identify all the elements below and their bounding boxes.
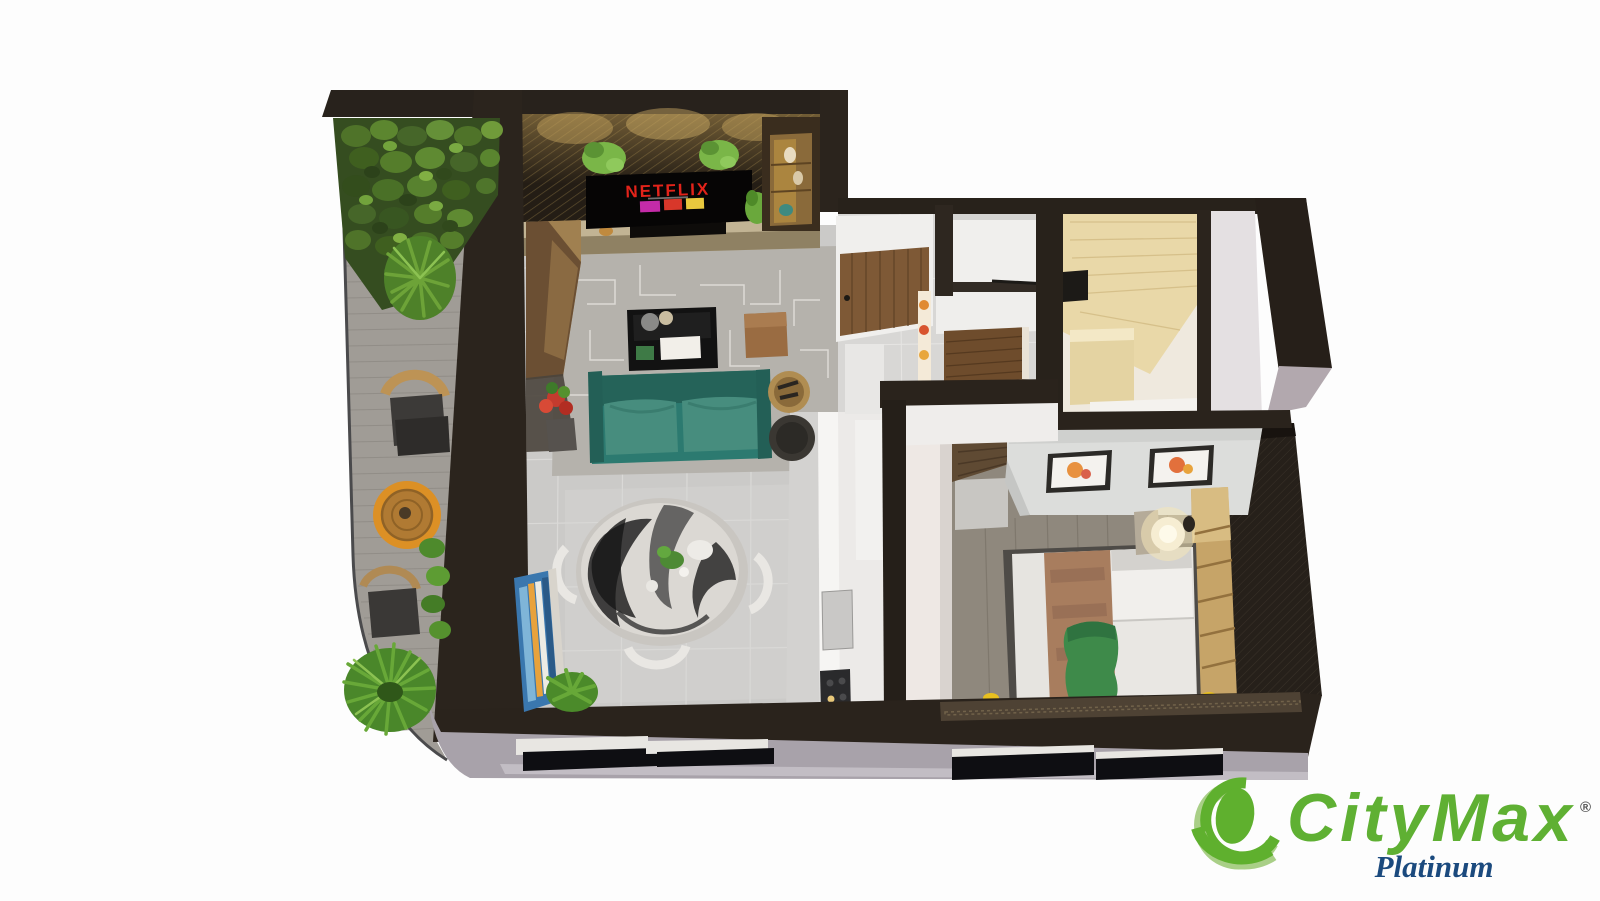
svg-text:Platinum: Platinum	[1374, 849, 1494, 884]
svg-text:®: ®	[1580, 799, 1591, 816]
svg-text:CityMax: CityMax	[1287, 780, 1576, 856]
